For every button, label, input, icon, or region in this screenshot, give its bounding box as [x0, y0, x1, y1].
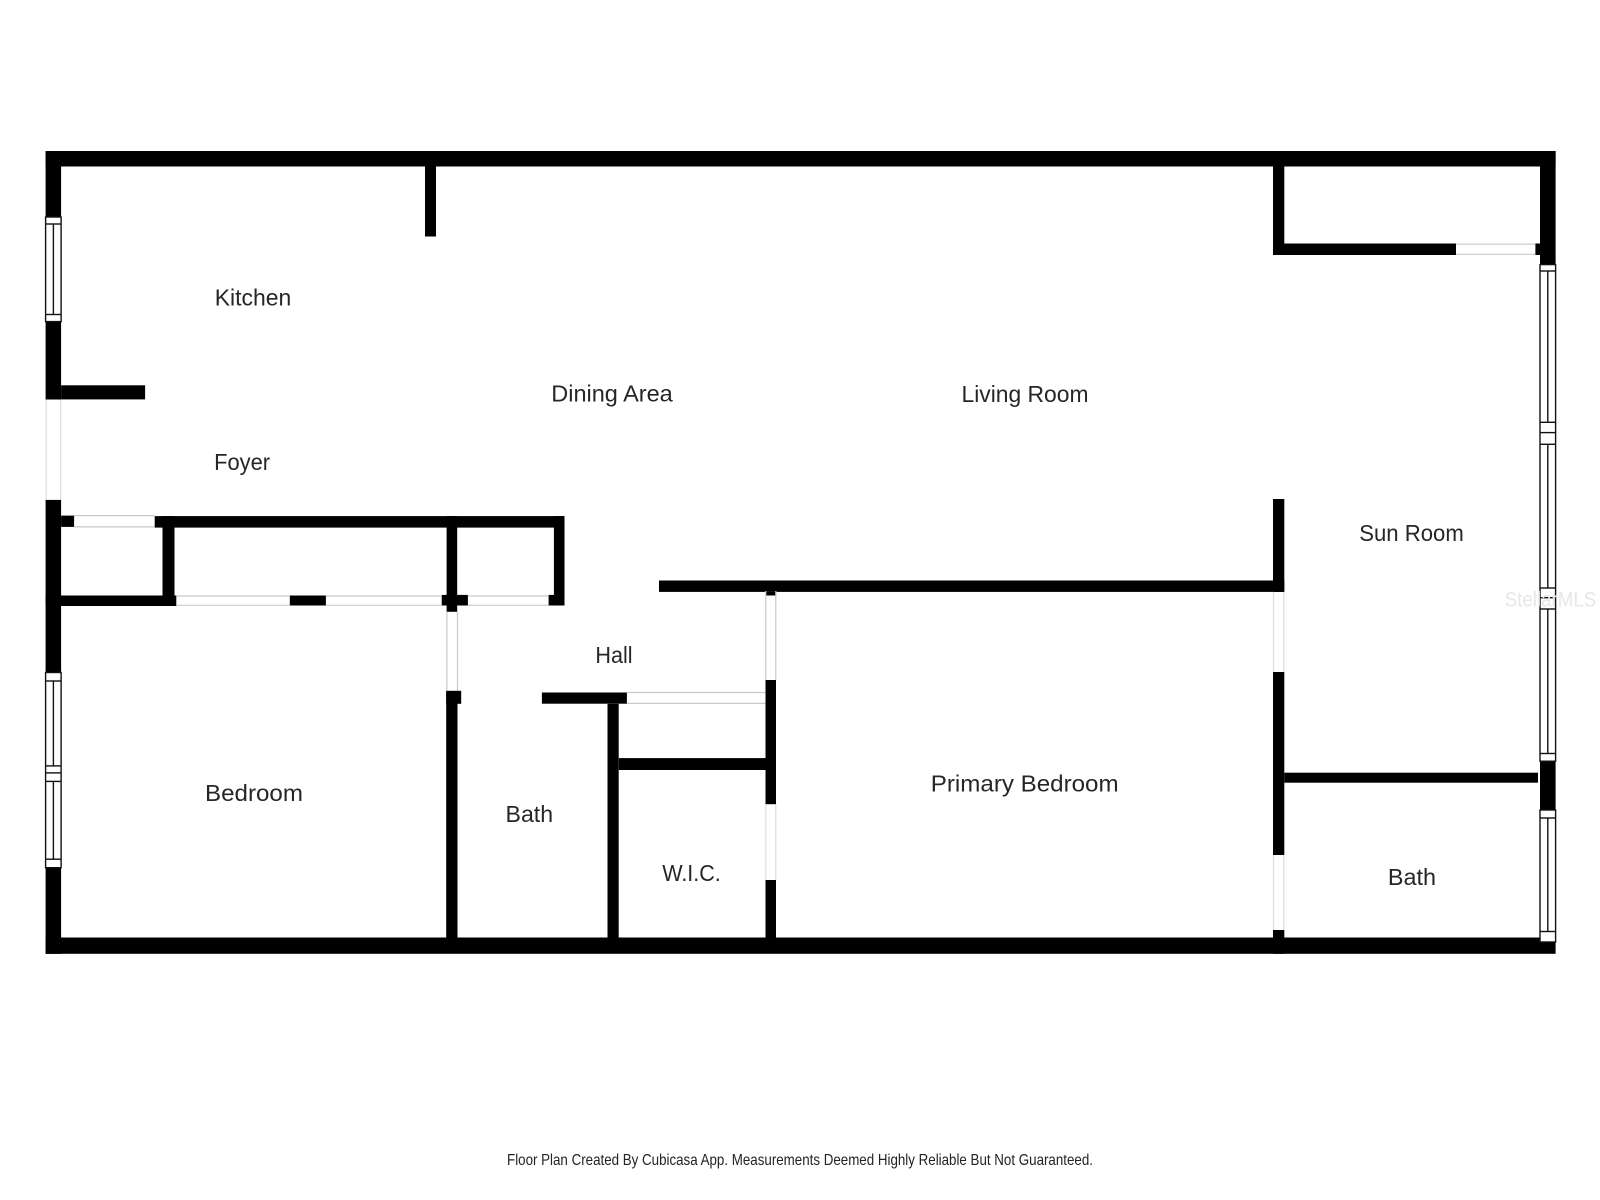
svg-text:Sun Room: Sun Room — [1359, 520, 1464, 546]
svg-text:Primary Bedroom: Primary Bedroom — [931, 771, 1119, 797]
svg-text:Hall: Hall — [595, 642, 632, 668]
svg-text:Foyer: Foyer — [214, 449, 270, 475]
svg-text:StellarMLS: StellarMLS — [1505, 589, 1597, 612]
svg-text:Dining Area: Dining Area — [551, 381, 673, 407]
svg-text:Kitchen: Kitchen — [215, 285, 292, 311]
svg-text:Bath: Bath — [1388, 864, 1436, 890]
svg-text:Bedroom: Bedroom — [205, 780, 303, 806]
svg-text:Living Room: Living Room — [962, 381, 1089, 407]
svg-text:Floor Plan Created By Cubicasa: Floor Plan Created By Cubicasa App. Meas… — [507, 1152, 1093, 1169]
svg-text:Bath: Bath — [506, 801, 554, 827]
svg-text:W.I.C.: W.I.C. — [662, 860, 721, 886]
